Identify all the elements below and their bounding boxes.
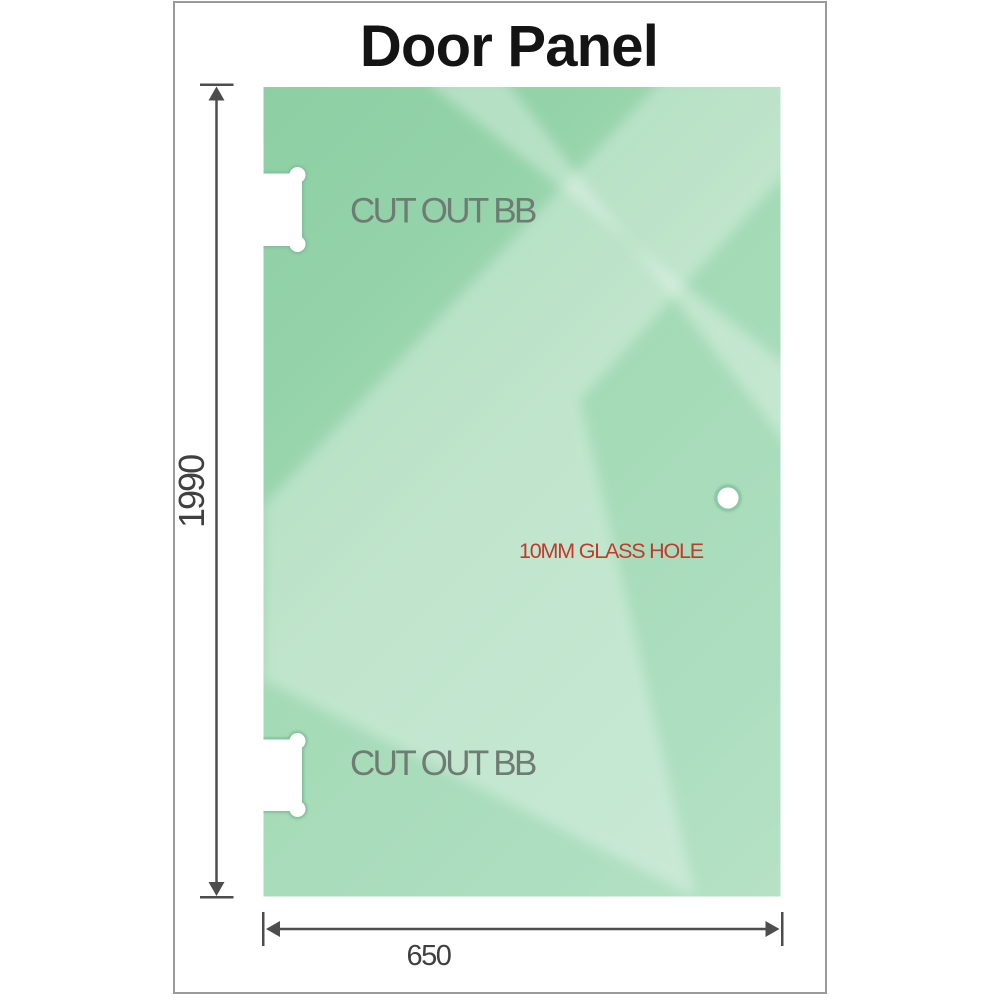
svg-text:Door Panel: Door Panel — [360, 14, 658, 79]
svg-text:10MM GLASS HOLE: 10MM GLASS HOLE — [519, 539, 704, 563]
svg-text:1990: 1990 — [171, 455, 212, 528]
svg-text:CUT OUT BB: CUT OUT BB — [350, 744, 536, 783]
svg-text:650: 650 — [407, 940, 451, 972]
svg-text:CUT OUT BB: CUT OUT BB — [350, 192, 536, 231]
